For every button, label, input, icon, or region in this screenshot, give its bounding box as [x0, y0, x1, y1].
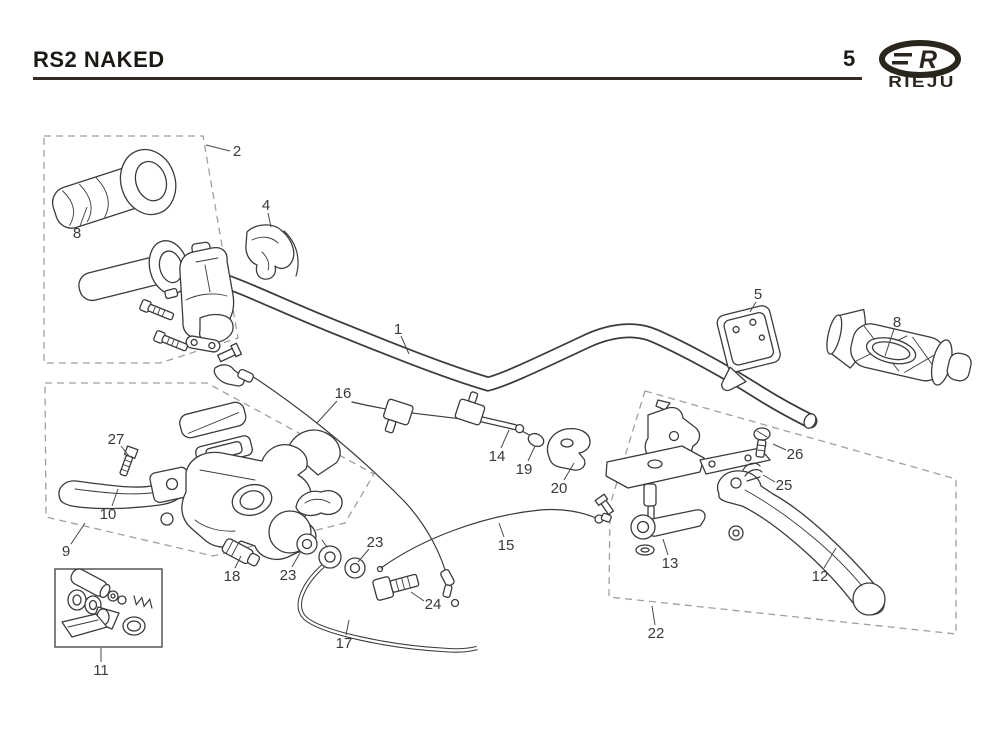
svg-text:18: 18 — [224, 568, 241, 585]
throttle-housing — [180, 242, 234, 343]
svg-text:15: 15 — [498, 537, 515, 554]
svg-text:5: 5 — [754, 286, 762, 303]
svg-text:4: 4 — [262, 197, 270, 214]
svg-text:23: 23 — [280, 567, 297, 584]
svg-text:24: 24 — [425, 596, 442, 613]
part-label-14: 14 — [489, 430, 509, 465]
svg-text:17: 17 — [336, 635, 353, 652]
svg-text:22: 22 — [648, 625, 665, 642]
part-label-24: 24 — [411, 592, 441, 613]
cable-bracket-20 — [548, 429, 590, 470]
elbow-fitting — [214, 343, 254, 386]
part-label-18: 18 — [224, 556, 241, 585]
part-label-11: 11 — [93, 648, 109, 679]
svg-text:27: 27 — [108, 431, 125, 448]
part-label-17: 17 — [336, 620, 353, 652]
catalog-page: 1 2 4 5 8 8 9 10 11 12 13 14 15 16 17 18… — [0, 0, 1000, 734]
header-rule — [33, 77, 862, 80]
part-label-13: 13 — [662, 539, 679, 572]
cam-lever — [631, 510, 705, 555]
adjuster-cable — [352, 402, 533, 437]
svg-text:19: 19 — [516, 461, 533, 478]
banjo-bolt — [372, 569, 420, 601]
svg-text:25: 25 — [776, 477, 793, 494]
part-label-27: 27 — [108, 431, 129, 456]
svg-text:1: 1 — [394, 321, 402, 338]
pivot-nut — [729, 526, 743, 540]
clamp-cap — [246, 225, 298, 279]
svg-text:23: 23 — [367, 534, 384, 551]
svg-text:10: 10 — [100, 506, 117, 523]
part-label-19: 19 — [516, 446, 535, 478]
part-label-2: 2 — [206, 143, 241, 160]
svg-text:26: 26 — [787, 446, 804, 463]
exploded-diagram: 1 2 4 5 8 8 9 10 11 12 13 14 15 16 17 18… — [0, 0, 1000, 734]
housing-screw-upper — [139, 299, 175, 322]
svg-text:12: 12 — [812, 568, 829, 585]
svg-text:8: 8 — [73, 225, 81, 242]
left-grip — [45, 142, 184, 243]
lever-screw — [754, 428, 770, 457]
part-label-15: 15 — [498, 523, 515, 554]
throttle-cable-lower — [378, 509, 612, 571]
svg-text:16: 16 — [335, 385, 352, 402]
svg-text:9: 9 — [62, 543, 70, 560]
repair-kit — [62, 567, 154, 637]
reservoir-cap — [178, 400, 248, 439]
cable-clamp-left — [379, 399, 414, 437]
svg-text:8: 8 — [893, 314, 901, 331]
svg-text:20: 20 — [551, 480, 568, 497]
svg-text:2: 2 — [233, 143, 241, 160]
part-label-22: 22 — [648, 606, 665, 642]
part-label-9: 9 — [62, 523, 85, 560]
cable-end-cap — [526, 431, 546, 449]
lever-bolt — [118, 446, 138, 477]
svg-text:13: 13 — [662, 555, 679, 572]
part-label-16: 16 — [317, 385, 351, 423]
part-label-23-b: 23 — [358, 534, 383, 562]
page-number: 5 — [843, 46, 855, 72]
svg-text:14: 14 — [489, 448, 506, 465]
brake-lever — [718, 471, 885, 615]
part-label-4: 4 — [262, 197, 271, 227]
housing-screw-lower — [153, 330, 189, 353]
brand-name: RIEJU — [861, 74, 984, 92]
logo-letter: R — [919, 46, 937, 74]
svg-text:11: 11 — [93, 662, 109, 679]
part-label-26: 26 — [773, 444, 803, 463]
page-title: RS2 NAKED — [33, 47, 165, 73]
throttle-tube — [73, 237, 194, 319]
